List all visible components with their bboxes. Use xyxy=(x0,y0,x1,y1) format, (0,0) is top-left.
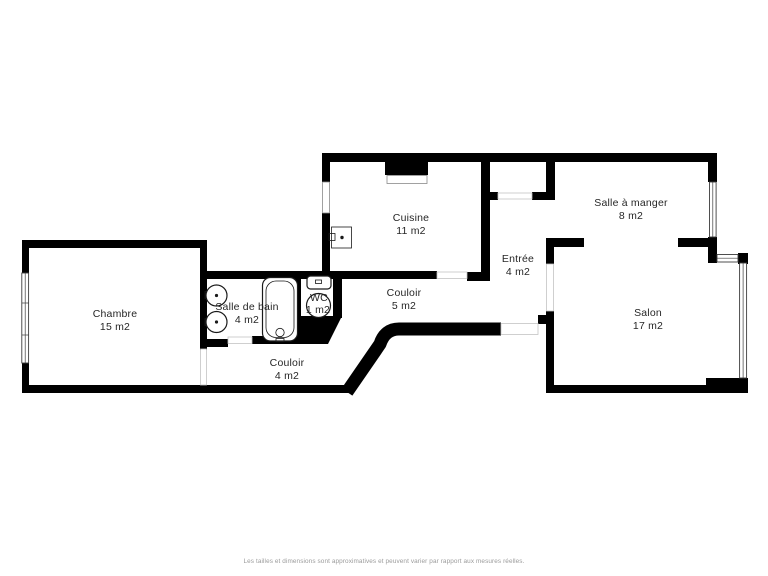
room-area: 1 m2 xyxy=(306,304,330,316)
window-salon-top xyxy=(717,255,738,263)
room-name: Salle à manger xyxy=(594,197,668,209)
wall-segment xyxy=(322,213,330,279)
walls xyxy=(22,153,748,393)
window-chambre xyxy=(22,273,29,363)
wall-segment xyxy=(333,271,342,318)
room-label-couloir-5: Couloir 5 m2 xyxy=(387,287,422,312)
wall-segment xyxy=(546,162,555,200)
wall-segment xyxy=(546,311,554,393)
wall-segment xyxy=(22,240,29,274)
door-opening-bathroom xyxy=(228,337,252,344)
room-name: Couloir xyxy=(270,357,305,369)
room-area: 4 m2 xyxy=(235,314,259,326)
room-name: Salon xyxy=(634,307,662,319)
wall-segment xyxy=(708,237,717,263)
room-area: 15 m2 xyxy=(100,321,130,333)
room-name: Entrée xyxy=(502,253,534,265)
room-name: Salle de bain xyxy=(215,301,278,313)
wall-segment xyxy=(296,316,342,344)
room-area: 5 m2 xyxy=(392,300,416,312)
room-area: 8 m2 xyxy=(619,210,643,222)
stove-icon xyxy=(329,227,352,248)
room-label-wc: WC 1 m2 xyxy=(306,292,330,316)
wall-segment xyxy=(546,238,554,264)
room-name: WC xyxy=(310,292,328,304)
room-area: 4 m2 xyxy=(506,266,530,278)
room-label-couloir-4: Couloir 4 m2 xyxy=(270,357,305,382)
window-salle-a-manger xyxy=(710,182,717,237)
door-opening-vestibule xyxy=(498,193,532,199)
room-name: Couloir xyxy=(387,287,422,299)
room-name: Cuisine xyxy=(393,212,429,224)
room-name: Chambre xyxy=(93,308,138,320)
wall-segment xyxy=(708,153,717,182)
room-area: 11 m2 xyxy=(396,225,425,237)
wall-segment xyxy=(489,192,498,200)
room-label-salon: Salon 17 m2 xyxy=(633,307,663,332)
window-cuisine xyxy=(323,182,330,213)
door-opening-salon xyxy=(547,264,554,311)
wall-segment xyxy=(738,253,748,264)
wall-segment-curved xyxy=(347,329,501,392)
room-label-cuisine: Cuisine 11 m2 xyxy=(393,212,429,237)
floor-plan: Chambre 15 m2 Salle de bain 4 m2 WC 1 m2… xyxy=(0,0,768,576)
window-salon-right xyxy=(740,263,747,378)
room-area: 17 m2 xyxy=(633,320,663,332)
disclaimer-text: Les tailles et dimensions sont approxima… xyxy=(244,558,525,565)
floor-plan-drawing: Chambre 15 m2 Salle de bain 4 m2 WC 1 m2… xyxy=(0,0,768,576)
hood-icon xyxy=(387,176,427,184)
door-opening-couloir xyxy=(501,324,538,335)
room-area: 4 m2 xyxy=(275,370,299,382)
wall-segment xyxy=(22,240,207,248)
wall-segment xyxy=(322,153,717,162)
room-label-salle-a-manger: Salle à manger 8 m2 xyxy=(594,197,668,222)
wall-segment xyxy=(200,339,228,347)
wall-segment xyxy=(546,385,748,393)
door-opening-chambre xyxy=(201,349,207,385)
room-label-chambre: Chambre 15 m2 xyxy=(93,308,138,333)
sink-icon xyxy=(205,312,227,333)
wall-segment xyxy=(481,162,490,280)
duct-block xyxy=(385,162,428,175)
wall-segment xyxy=(22,385,354,393)
door-opening-cuisine xyxy=(437,272,467,279)
room-label-entree: Entrée 4 m2 xyxy=(502,253,534,278)
